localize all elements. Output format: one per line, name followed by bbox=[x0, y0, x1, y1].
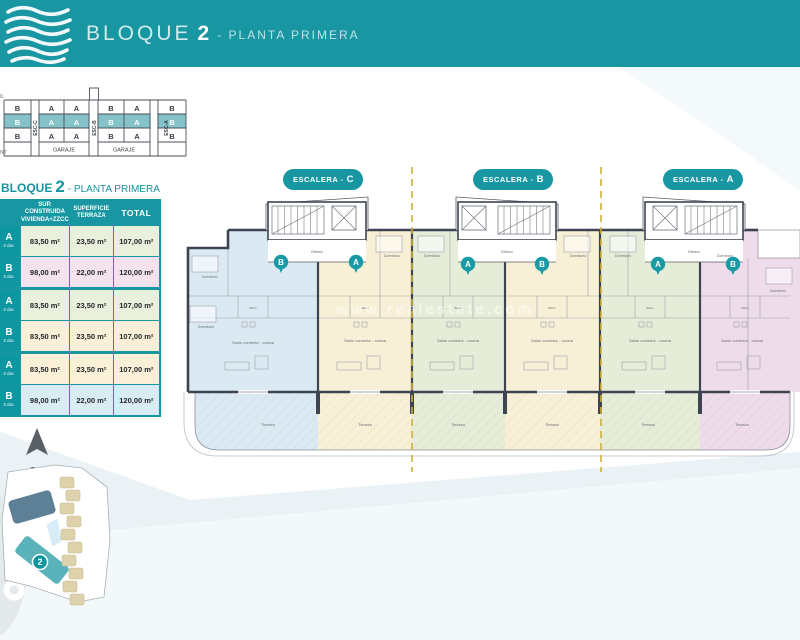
svg-text:GARAJE: GARAJE bbox=[113, 148, 135, 154]
title-number: 2 bbox=[198, 22, 210, 46]
escalera-c-badge: ESCALERA -C bbox=[283, 169, 363, 190]
svg-text:Terraza: Terraza bbox=[641, 422, 655, 427]
svg-text:Terraza: Terraza bbox=[358, 422, 372, 427]
svg-text:B: B bbox=[730, 260, 736, 269]
svg-text:B: B bbox=[15, 132, 21, 141]
site-block-2-badge: 2 bbox=[33, 555, 48, 570]
header-bar: BLOQUE 2 - PLANTA PRIMERA bbox=[0, 0, 800, 67]
svg-text:GARAJE: GARAJE bbox=[53, 148, 75, 154]
table-row: B3 dor. 98,00 m²22,00 m²120,00 m² bbox=[0, 257, 160, 289]
table-row: A2 dor. 83,50 m²23,50 m²107,00 m² bbox=[0, 353, 160, 385]
svg-text:Baño: Baño bbox=[548, 306, 555, 310]
siteplan: N 2 bbox=[0, 425, 176, 640]
escalera-b-badge: ESCALERA -B bbox=[473, 169, 553, 190]
svg-text:Salón comedor - cocina: Salón comedor - cocina bbox=[344, 338, 387, 343]
escalera-a-badge: ESCALERA -A bbox=[663, 169, 743, 190]
svg-text:Dormitorio: Dormitorio bbox=[424, 254, 440, 258]
watermark: www.realestate.com bbox=[335, 301, 534, 318]
svg-text:B: B bbox=[169, 132, 175, 141]
brand-logo-waves-icon bbox=[4, 2, 76, 66]
svg-text:A: A bbox=[74, 104, 80, 113]
svg-text:A: A bbox=[74, 132, 80, 141]
surface-table-header: SUP. CONSTRUIDAVIVIENDA+ZZCC SUPERFICIET… bbox=[0, 200, 160, 226]
building-profile-schematic: IL NT ESC-C ESC-B ESC-A BA AB bbox=[0, 86, 196, 160]
svg-text:A: A bbox=[49, 104, 55, 113]
table-row: A2 dor. 83,50 m²23,50 m²107,00 m² bbox=[0, 226, 160, 257]
svg-text:ESC-B: ESC-B bbox=[92, 120, 98, 136]
table-row: B3 dor. 98,00 m²22,00 m²120,00 m² bbox=[0, 385, 160, 417]
table-row: A2 dor. 83,50 m²23,50 m²107,00 m² bbox=[0, 289, 160, 321]
svg-text:A: A bbox=[74, 118, 80, 127]
svg-text:Salón comedor - cocina: Salón comedor - cocina bbox=[721, 338, 764, 343]
table-title-number: 2 bbox=[55, 177, 64, 197]
svg-text:Terraza: Terraza bbox=[261, 422, 275, 427]
table-title-brand: BLOQUE bbox=[1, 181, 52, 195]
svg-text:Dormitorio: Dormitorio bbox=[198, 325, 214, 329]
svg-text:Salón comedor - cocina: Salón comedor - cocina bbox=[232, 340, 275, 345]
profile-edge-fragment-top: IL bbox=[0, 94, 4, 100]
svg-text:B: B bbox=[278, 258, 284, 267]
svg-text:B: B bbox=[169, 104, 175, 113]
floorplan: Rellano Rellano Rellano Dormitorio Dormi… bbox=[180, 156, 800, 480]
svg-text:Dormitorio: Dormitorio bbox=[770, 289, 786, 293]
svg-text:Baño: Baño bbox=[249, 306, 256, 310]
svg-text:Dormitorio: Dormitorio bbox=[615, 254, 631, 258]
title-subtitle: - PLANTA PRIMERA bbox=[217, 25, 359, 42]
svg-text:Dormitorio: Dormitorio bbox=[384, 254, 400, 258]
surface-table: SUP. CONSTRUIDAVIVIENDA+ZZCC SUPERFICIET… bbox=[0, 199, 161, 417]
svg-text:A: A bbox=[49, 132, 55, 141]
svg-text:Rellano: Rellano bbox=[311, 250, 323, 254]
svg-text:B: B bbox=[15, 118, 21, 127]
title-brand: BLOQUE bbox=[86, 22, 192, 46]
table-title-sub: - PLANTA PRIMERA bbox=[68, 184, 160, 195]
svg-text:Baño: Baño bbox=[646, 306, 653, 310]
svg-text:Dormitorio: Dormitorio bbox=[570, 254, 586, 258]
svg-text:Salón comedor - cocina: Salón comedor - cocina bbox=[531, 338, 574, 343]
table-row: B2 dor. 83,50 m²23,50 m²107,00 m² bbox=[0, 321, 160, 353]
profile-edge-fragment-bottom: NT bbox=[0, 150, 7, 156]
svg-text:Terraza: Terraza bbox=[451, 422, 465, 427]
svg-text:A: A bbox=[655, 260, 661, 269]
svg-text:A: A bbox=[49, 118, 55, 127]
svg-text:B: B bbox=[169, 118, 175, 127]
svg-text:Terraza: Terraza bbox=[545, 422, 559, 427]
svg-text:Rellano: Rellano bbox=[501, 250, 513, 254]
svg-text:B: B bbox=[539, 260, 545, 269]
svg-text:A: A bbox=[134, 132, 140, 141]
svg-text:A: A bbox=[134, 104, 140, 113]
svg-text:B: B bbox=[15, 104, 21, 113]
page-title: BLOQUE 2 - PLANTA PRIMERA bbox=[86, 0, 360, 67]
svg-text:2: 2 bbox=[37, 557, 42, 567]
svg-text:Salón comedor - cocina: Salón comedor - cocina bbox=[629, 338, 672, 343]
svg-text:Dormitorio: Dormitorio bbox=[202, 275, 218, 279]
svg-text:A: A bbox=[134, 118, 140, 127]
svg-text:A: A bbox=[465, 260, 471, 269]
svg-text:B: B bbox=[108, 118, 114, 127]
svg-text:Rellano: Rellano bbox=[688, 250, 700, 254]
svg-text:Baño: Baño bbox=[741, 306, 748, 310]
svg-text:B: B bbox=[108, 132, 114, 141]
svg-text:B: B bbox=[108, 104, 114, 113]
svg-text:Terraza: Terraza bbox=[735, 422, 749, 427]
page: BLOQUE 2 - PLANTA PRIMERA IL NT ESC-C bbox=[0, 0, 800, 640]
svg-text:ESC-C: ESC-C bbox=[33, 120, 39, 136]
svg-text:A: A bbox=[353, 258, 359, 267]
svg-text:Salón comedor - cocina: Salón comedor - cocina bbox=[437, 338, 480, 343]
table-title: BLOQUE 2 - PLANTA PRIMERA bbox=[1, 177, 160, 197]
